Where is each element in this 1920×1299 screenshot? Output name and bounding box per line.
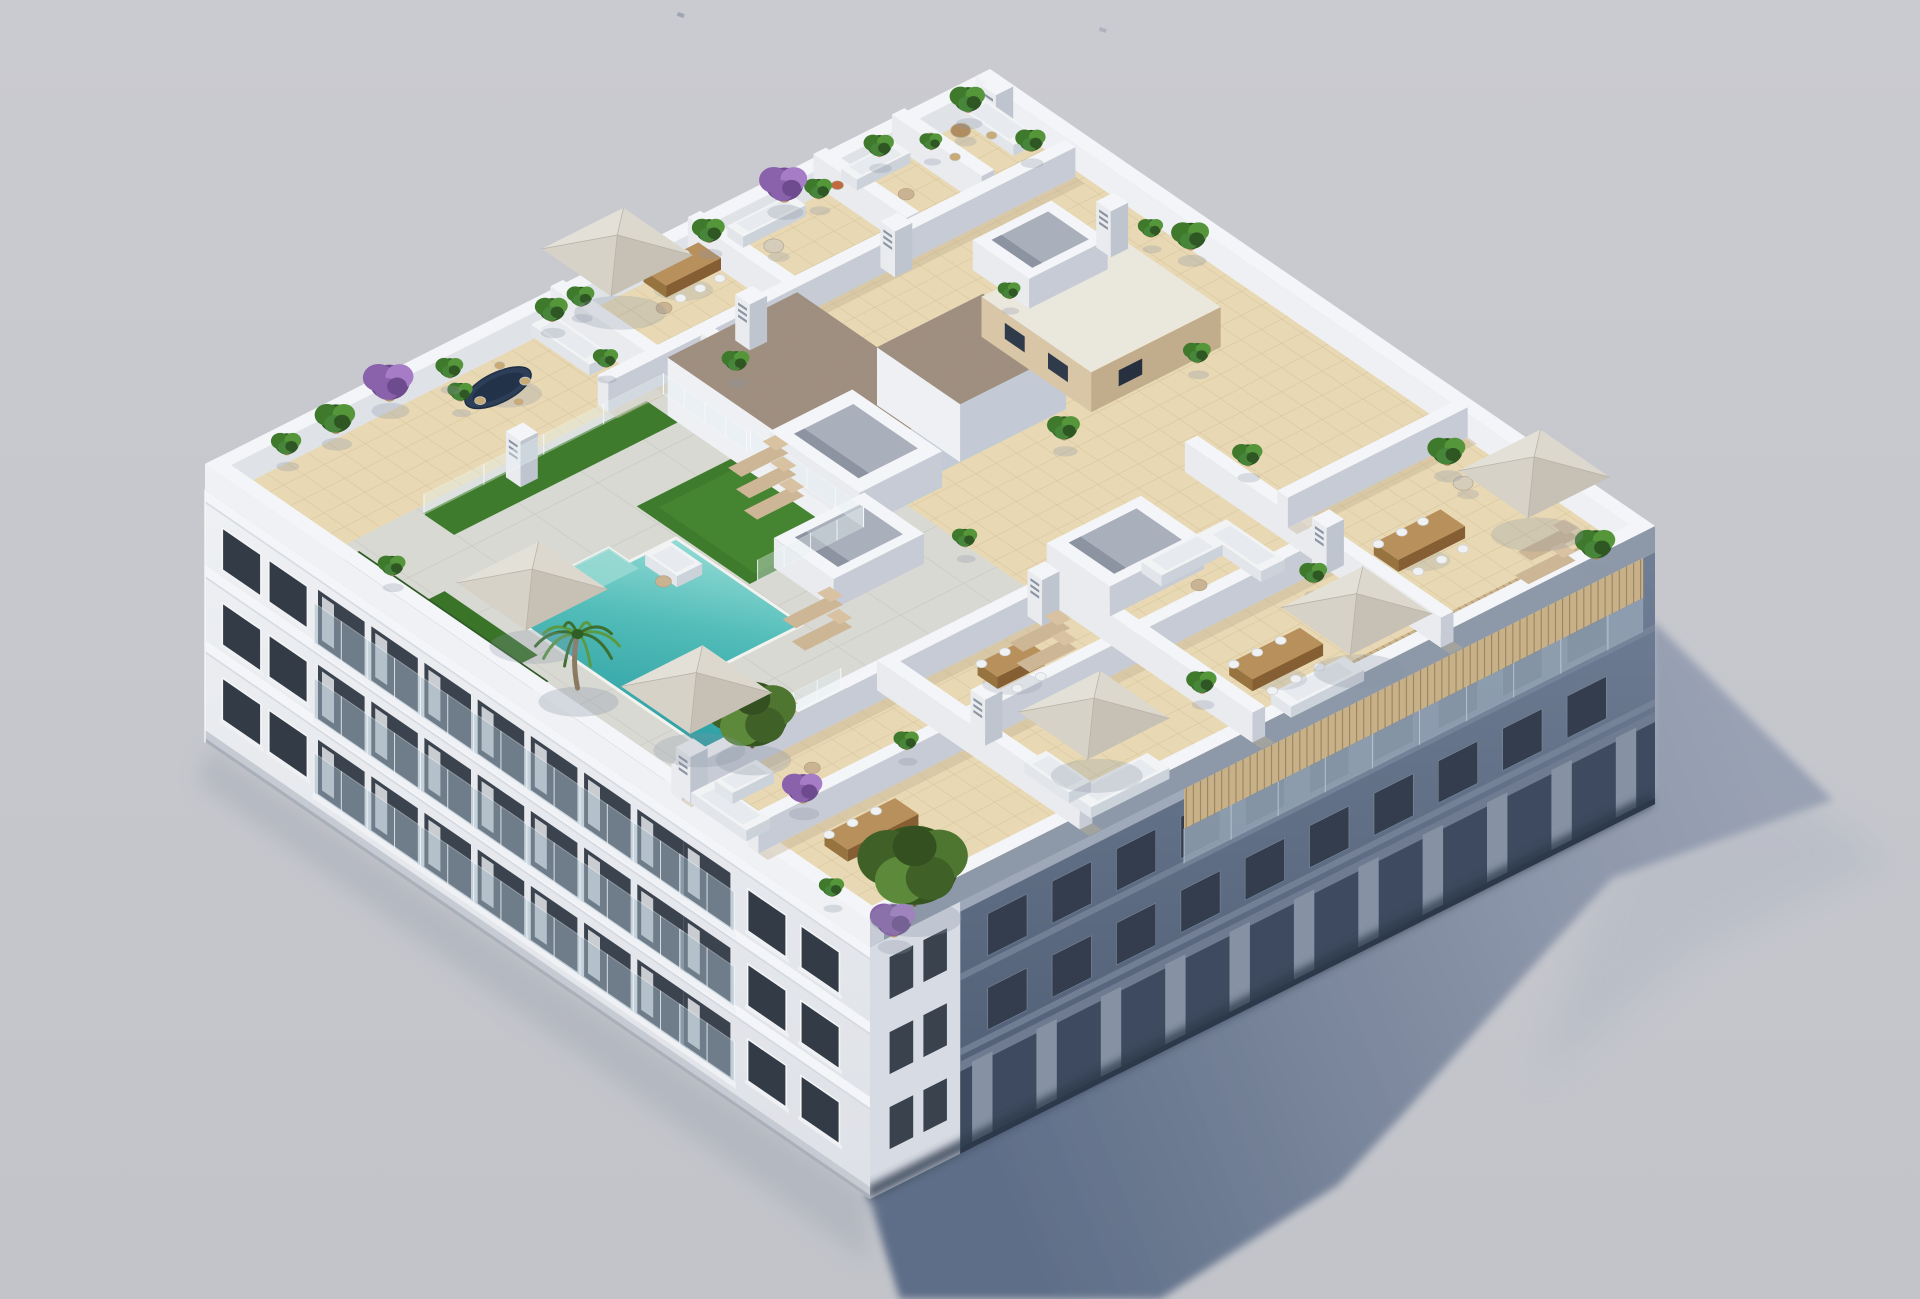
chair xyxy=(1290,675,1301,683)
chair xyxy=(1035,673,1046,681)
render-canvas xyxy=(0,0,1920,1299)
ground-shade xyxy=(1021,158,1044,168)
pouf xyxy=(804,762,820,774)
plant-foliage xyxy=(605,356,615,365)
chair xyxy=(714,274,725,282)
ground-shade xyxy=(1582,564,1612,577)
chair xyxy=(986,131,997,139)
pouf xyxy=(1191,579,1207,591)
chair xyxy=(695,284,706,292)
plant-foliage xyxy=(391,563,402,573)
parasol-shadow xyxy=(1051,759,1143,793)
chair xyxy=(1267,687,1278,695)
plant-foliage xyxy=(1150,226,1160,235)
chair xyxy=(871,807,882,815)
chimney-se-face xyxy=(985,691,1002,746)
plant-foliage xyxy=(818,186,829,196)
plant-foliage xyxy=(878,143,890,154)
ground-shade xyxy=(1053,446,1078,456)
plant-foliage xyxy=(735,358,746,368)
chimney-se-face xyxy=(1111,203,1128,258)
chair xyxy=(1228,660,1239,668)
chair xyxy=(1373,540,1384,548)
plant-foliage xyxy=(967,96,981,108)
tree-canopy xyxy=(893,827,937,867)
chair xyxy=(847,819,858,827)
chair xyxy=(1252,648,1263,656)
scene-svg xyxy=(0,0,1920,1299)
plant-foliage xyxy=(964,535,974,544)
ground-shade xyxy=(1238,473,1261,483)
ground-shade xyxy=(809,206,830,215)
plant-foliage xyxy=(334,415,350,429)
ground-shade xyxy=(824,905,843,913)
ground-shade xyxy=(598,375,617,383)
plant-foliage xyxy=(1247,452,1259,463)
ground-shade xyxy=(322,438,352,451)
parasol-shadow xyxy=(1314,654,1406,688)
plant-foliage xyxy=(1594,541,1610,555)
chair xyxy=(1436,556,1447,564)
ground-shade xyxy=(541,328,566,338)
plant-foliage xyxy=(387,378,407,396)
plant-foliage xyxy=(708,228,721,239)
chair xyxy=(513,398,524,406)
plant-foliage xyxy=(1201,679,1213,690)
table-shade xyxy=(955,136,977,146)
chair xyxy=(1396,528,1407,536)
table-shade xyxy=(1457,489,1479,499)
plant-foliage xyxy=(831,885,841,894)
ground-shade xyxy=(767,205,803,220)
parasol-shadow xyxy=(1491,518,1583,552)
pouf xyxy=(655,576,671,588)
plant-foliage xyxy=(1063,425,1076,436)
ground-shade xyxy=(898,758,917,766)
ground-shade xyxy=(1002,307,1019,314)
ground-shade xyxy=(957,555,976,563)
pouf xyxy=(898,188,914,200)
parasol-shadow xyxy=(574,296,666,330)
ground-shade xyxy=(878,940,912,954)
plant-foliage xyxy=(551,307,564,318)
chimney-se-face xyxy=(750,296,767,351)
chair xyxy=(1275,637,1286,645)
ground-shade xyxy=(924,158,941,165)
chimney-se-face xyxy=(1327,519,1344,574)
ground-shade xyxy=(956,118,983,129)
ground-shade xyxy=(869,164,892,174)
chair xyxy=(475,397,486,405)
ground-shade xyxy=(383,583,404,592)
chair xyxy=(950,153,961,161)
plant-foliage xyxy=(782,180,801,197)
plant-foliage xyxy=(1196,350,1207,360)
table-shade xyxy=(768,252,790,262)
ground-shade xyxy=(727,379,748,388)
terrace-wall-j-se-face xyxy=(1441,612,1454,648)
plant-foliage xyxy=(930,139,939,147)
ground-shade xyxy=(371,403,409,419)
ground-shade xyxy=(1192,700,1215,710)
ground-shade xyxy=(441,386,462,395)
ground-shade xyxy=(1143,245,1162,253)
chair xyxy=(1417,518,1428,526)
ground-shade xyxy=(698,249,723,259)
plant-foliage xyxy=(801,784,817,798)
plant-foliage xyxy=(1313,570,1324,580)
chair xyxy=(999,648,1010,656)
plant-foliage xyxy=(1189,232,1204,245)
ground-shade xyxy=(452,409,471,417)
terracotta-seat xyxy=(831,181,843,190)
plant-foliage xyxy=(1030,138,1042,149)
ground-shade xyxy=(1434,470,1463,482)
plant-foliage xyxy=(1446,448,1461,461)
round-table xyxy=(764,239,784,253)
chair xyxy=(520,377,531,385)
plant-foliage xyxy=(906,738,916,747)
ground-shade xyxy=(789,808,819,821)
ground-shade xyxy=(276,462,299,472)
chair xyxy=(494,361,505,369)
ground-shade xyxy=(539,687,619,717)
chair xyxy=(1457,545,1468,553)
ground-shade xyxy=(1188,370,1209,379)
chimney-se-face xyxy=(895,223,912,278)
plant-foliage xyxy=(449,365,460,375)
chair xyxy=(675,294,686,302)
chair xyxy=(823,831,834,839)
chair xyxy=(1012,684,1023,692)
chair xyxy=(1413,567,1424,575)
parasol-shadow xyxy=(653,733,745,767)
ground-shade xyxy=(1178,255,1207,267)
plant-foliage xyxy=(285,441,297,452)
parasol-shadow xyxy=(489,630,581,664)
plant-foliage xyxy=(1009,288,1018,296)
terrace-wall-h-se-face xyxy=(1253,706,1266,742)
chair xyxy=(976,660,987,668)
